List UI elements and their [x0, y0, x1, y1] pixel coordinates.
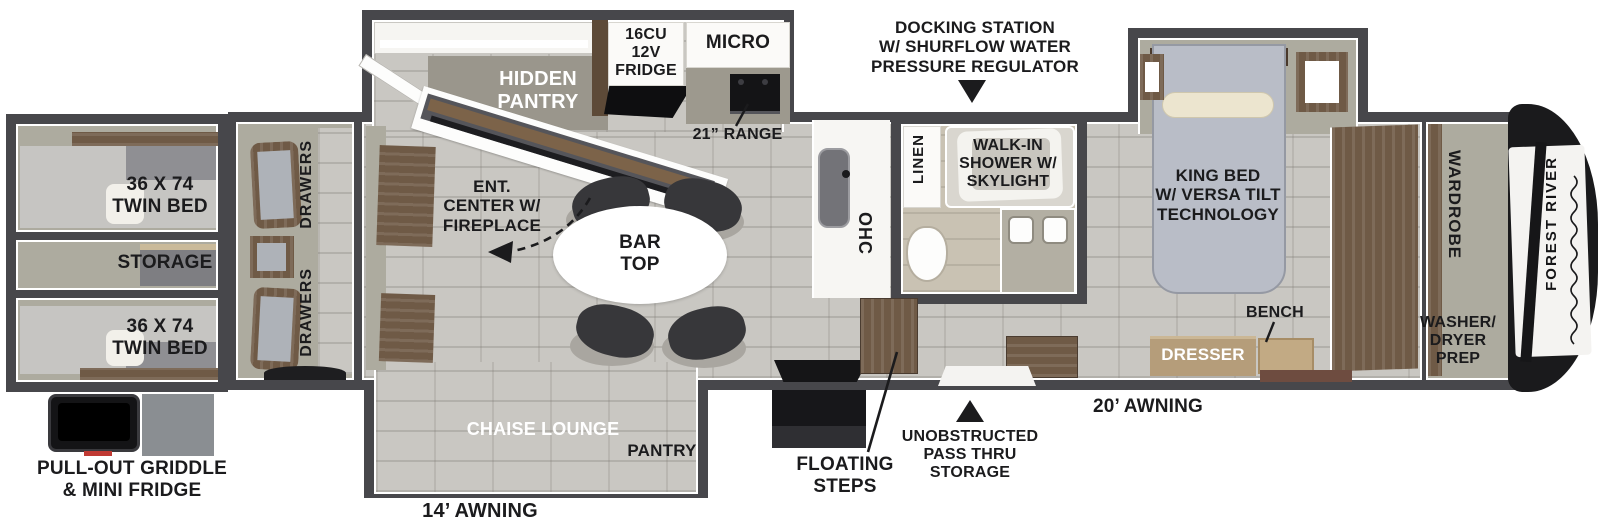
docking-station-arrow-icon [958, 80, 986, 103]
pantry-counter-edge [380, 40, 588, 48]
label-pantry: PANTRY [626, 441, 698, 460]
living-wall-cabinet-bottom [379, 293, 435, 363]
label-shower: WALK-IN SHOWER W/ SKYLIGHT [928, 137, 1088, 192]
griddle-surface [58, 403, 130, 441]
mirror-glass-top [257, 150, 294, 220]
sink-faucet [842, 170, 850, 178]
label-twin-bed-top: 36 X 74 TWIN BED [70, 174, 250, 217]
mini-fridge [142, 394, 214, 456]
label-micro: MICRO [686, 32, 790, 54]
label-drawers-bottom: DRAWERS [298, 268, 316, 357]
range-knob-right [762, 79, 768, 85]
range-knob-left [738, 79, 744, 85]
vanity-counter [264, 366, 346, 380]
bedroom-window-left-pane [1145, 62, 1159, 92]
label-docking-station: DOCKING STATION W/ SHURFLOW WATER PRESSU… [815, 18, 1135, 76]
pantry-counter [374, 22, 594, 54]
rv-floorplan: 36 X 74 TWIN BED STORAGE 36 X 74 TWIN BE… [0, 0, 1600, 530]
hall-cabinet-left [860, 298, 918, 374]
label-hidden-pantry: HIDDEN PANTRY [448, 68, 628, 114]
entry-mat [774, 360, 868, 382]
floating-steps-box [772, 390, 866, 448]
bedroom-rug [1260, 370, 1352, 382]
bunk-bottom-footboard [80, 368, 218, 380]
toilet [906, 226, 948, 282]
label-range: 21” RANGE [655, 126, 820, 144]
griddle-handle [84, 451, 112, 456]
pass-thru-arrow-icon [956, 400, 984, 422]
vanity-sink-right [1042, 216, 1068, 244]
mirror-glass-mid [257, 243, 286, 271]
label-brand-forest-river: FOREST RIVER [1543, 156, 1560, 291]
bedroom-window-right-pane [1305, 61, 1339, 103]
kitchen-sink [818, 148, 850, 228]
label-pass-thru: UNOBSTRUCTED PASS THRU STORAGE [880, 428, 1060, 483]
pass-thru-hatch [938, 366, 1036, 386]
label-washer-dryer: WASHER/ DRYER PREP [1398, 314, 1518, 369]
label-awning-14: 14’ AWNING [400, 500, 560, 523]
label-griddle: PULL-OUT GRIDDLE & MINI FRIDGE [22, 458, 242, 501]
label-ohc: OHC [854, 212, 875, 255]
label-chaise-lounge: CHAISE LOUNGE [453, 419, 633, 440]
mirror-glass-bottom [257, 296, 293, 362]
vanity-sink-left [1008, 216, 1034, 244]
label-storage: STORAGE [75, 252, 255, 274]
label-drawers-top: DRAWERS [298, 140, 316, 229]
label-awning-20: 20’ AWNING [1068, 396, 1228, 418]
label-bar-top: BAR TOP [590, 232, 690, 275]
king-bed-pillow [1162, 92, 1274, 118]
drawers-room-tile-strip [318, 128, 352, 374]
bunk-top-headboard [72, 132, 218, 146]
label-ent-center: ENT. CENTER W/ FIREPLACE [402, 177, 582, 235]
label-wardrobe: WARDROBE [1444, 150, 1464, 259]
label-dresser: DRESSER [1150, 345, 1256, 364]
bench [1258, 338, 1314, 374]
label-twin-bed-bottom: 36 X 74 TWIN BED [70, 316, 250, 359]
label-fridge: 16CU 12V FRIDGE [608, 26, 684, 81]
label-king-bed: KING BED W/ VERSA TILT TECHNOLOGY [1128, 166, 1308, 224]
label-bench: BENCH [1225, 304, 1325, 322]
label-linen: LINEN [910, 134, 927, 184]
